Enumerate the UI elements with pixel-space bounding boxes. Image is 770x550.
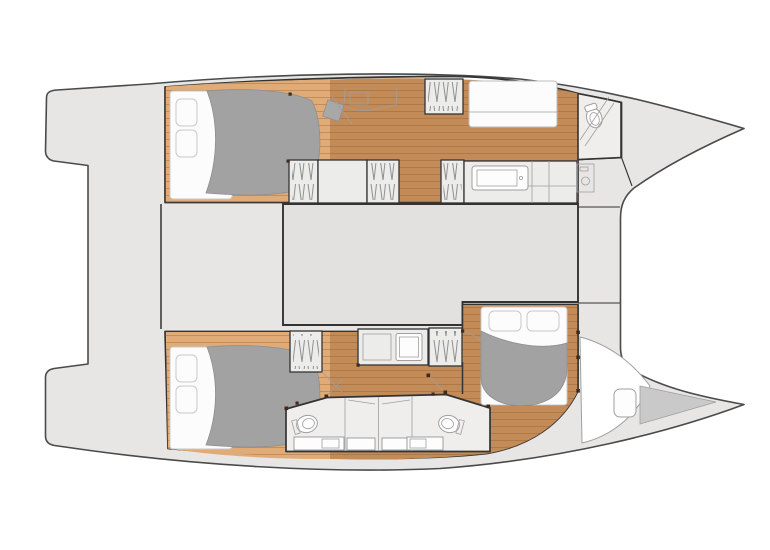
catamaran-floor-plan: [0, 0, 770, 550]
pivot-dot: [576, 389, 580, 393]
upper-cabinet: [318, 160, 367, 203]
pivot-dot: [576, 356, 580, 360]
pivot-dot: [325, 395, 329, 399]
pivot-dot: [357, 364, 360, 367]
pivot-dot: [444, 391, 448, 395]
pivot-dot: [461, 330, 464, 333]
pivot-dot: [296, 402, 299, 405]
upper-hull-owner-suite: [165, 77, 632, 204]
pivot-dot: [287, 160, 290, 163]
pivot-dot: [576, 331, 580, 335]
upper-wardrobe-1-hatch: [370, 163, 396, 200]
lower-wardrobe-hatch: [432, 331, 459, 363]
forward-bed-pillow-2: [527, 311, 559, 331]
aft-guest-bed-pillow-2: [176, 386, 197, 413]
shower-seat-left: [347, 438, 375, 450]
owner-bed-pillow-2: [176, 130, 197, 157]
upper-top-wardrobe-hatch: [428, 82, 460, 111]
pivot-dot: [289, 93, 292, 96]
pivot-dot: [432, 393, 435, 396]
forward-bed-pillow-1: [489, 311, 521, 331]
floor-plan-page: [0, 0, 770, 550]
upper-wardrobe-2-hatch: [444, 163, 462, 200]
aft-guest-bed-pillow-1: [176, 355, 197, 382]
bow-berth-cushion: [614, 389, 636, 417]
pivot-dot: [285, 407, 289, 411]
owner-bed-pillow-1: [176, 99, 197, 126]
pivot-dot: [427, 374, 431, 378]
sofa-bench: [469, 81, 557, 127]
sofa-bench-base: [469, 81, 557, 127]
lower-steps-hatch: [293, 334, 319, 369]
shower-seat-right: [382, 438, 410, 450]
pivot-dot: [487, 405, 491, 409]
upper-steps-hatch: [292, 163, 315, 200]
upper-top-wardrobe: [425, 79, 463, 114]
